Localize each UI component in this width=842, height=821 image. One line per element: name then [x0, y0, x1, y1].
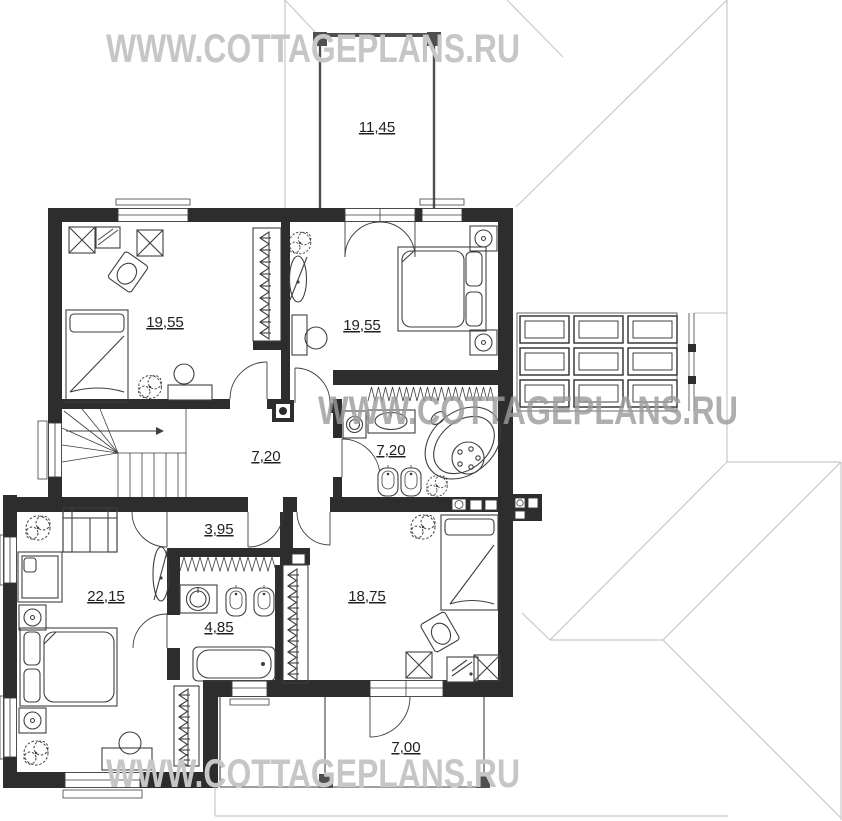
label-bathroom-ensuite: 4,85 — [204, 619, 233, 636]
watermark-bottom: WWW.COTTAGEPLANS.RU — [106, 752, 520, 796]
watermark-top: WWW.COTTAGEPLANS.RU — [106, 27, 520, 71]
cheval-mirror — [153, 547, 169, 601]
single-bed — [441, 515, 498, 610]
bathtub — [193, 647, 275, 681]
label-bedroom-top-right: 19,55 — [343, 317, 381, 334]
label-bathroom-main: 7,20 — [376, 442, 405, 459]
label-bedroom-top-left: 19,55 — [146, 314, 184, 331]
floor-plan-drawing: 11,45 19,55 19,55 7,20 7,20 3,95 22,15 4… — [0, 0, 842, 821]
bedroom-right-furniture — [283, 515, 500, 683]
label-balcony: 11,45 — [359, 119, 395, 136]
sofa — [63, 508, 117, 552]
watermark-middle: WWW.COTTAGEPLANS.RU — [318, 389, 738, 433]
bedroom-master-furniture — [18, 508, 199, 770]
double-bed — [20, 628, 117, 706]
label-stair-hall: 7,20 — [251, 448, 280, 465]
walls — [3, 208, 542, 788]
label-corridor: 3,95 — [204, 521, 233, 538]
label-bedroom-master: 22,15 — [87, 588, 125, 605]
crib — [18, 552, 62, 602]
double-bed — [398, 247, 486, 331]
cheval-mirror — [290, 256, 308, 302]
label-bedroom-right: 18,75 — [348, 588, 386, 605]
bedroom-top-left-furniture — [66, 227, 212, 402]
stairs — [62, 409, 186, 497]
floor-plan-page: 11,45 19,55 19,55 7,20 7,20 3,95 22,15 4… — [0, 0, 842, 821]
closet-hangers — [253, 228, 281, 341]
desk — [447, 657, 478, 682]
closet-hangers — [283, 565, 308, 683]
single-bed — [66, 310, 128, 402]
round-sink — [180, 585, 217, 613]
